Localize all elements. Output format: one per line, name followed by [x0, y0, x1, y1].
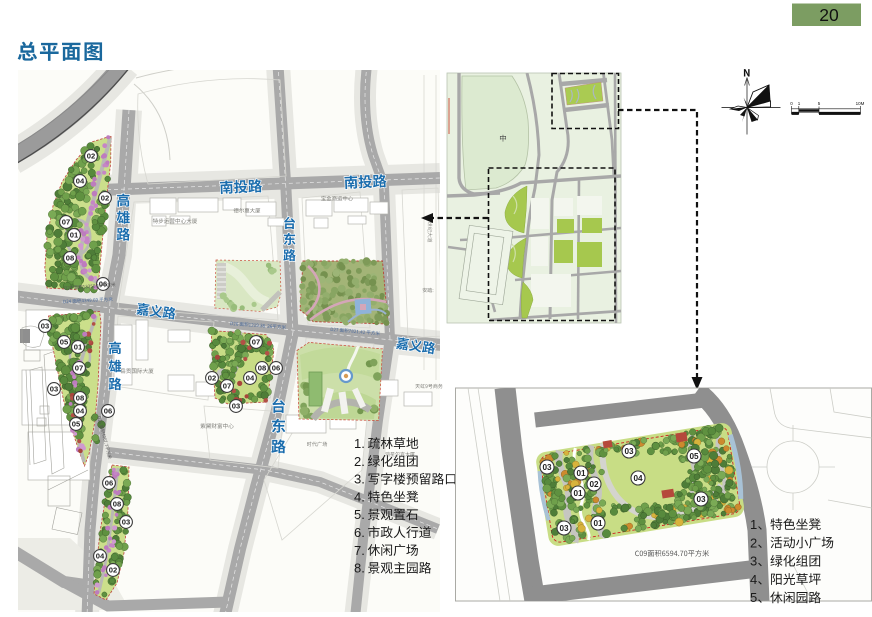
- svg-text:02: 02: [589, 480, 599, 489]
- svg-text:06: 06: [105, 479, 113, 488]
- svg-text:4.: 4.: [354, 489, 365, 504]
- svg-text:1.: 1.: [354, 436, 365, 451]
- svg-text:8.: 8.: [354, 561, 365, 576]
- svg-text:7.: 7.: [354, 543, 365, 558]
- svg-text:5: 5: [818, 101, 821, 106]
- svg-text:05: 05: [689, 452, 699, 461]
- svg-text:04: 04: [76, 177, 85, 186]
- svg-text:03: 03: [41, 322, 49, 331]
- svg-text:01: 01: [576, 469, 586, 478]
- svg-text:02: 02: [109, 566, 117, 575]
- svg-text:04: 04: [96, 552, 105, 561]
- svg-text:03: 03: [122, 518, 130, 527]
- svg-text:07: 07: [62, 218, 70, 227]
- svg-text:08: 08: [76, 394, 84, 403]
- svg-text:5.: 5.: [354, 507, 365, 522]
- svg-text:04: 04: [633, 474, 643, 483]
- svg-text:06: 06: [272, 364, 280, 373]
- svg-text:1: 1: [798, 101, 801, 106]
- svg-text:02: 02: [208, 374, 216, 383]
- svg-text:04: 04: [76, 407, 85, 416]
- svg-text:10M: 10M: [856, 101, 865, 106]
- svg-text:02: 02: [87, 152, 95, 161]
- svg-text:2: 2: [750, 535, 757, 550]
- svg-text:2.: 2.: [354, 454, 365, 469]
- svg-text:03: 03: [624, 447, 634, 456]
- svg-text:6.: 6.: [354, 525, 365, 540]
- svg-text:03: 03: [696, 495, 706, 504]
- svg-text:08: 08: [258, 364, 266, 373]
- svg-text:07: 07: [75, 364, 83, 373]
- svg-text:07: 07: [252, 338, 260, 347]
- svg-text:06: 06: [104, 407, 112, 416]
- svg-text:07: 07: [223, 382, 231, 391]
- svg-text:03: 03: [50, 385, 58, 394]
- svg-text:05: 05: [60, 338, 69, 347]
- svg-text:01: 01: [74, 343, 83, 352]
- svg-text:08: 08: [66, 254, 74, 263]
- svg-text:5: 5: [750, 590, 757, 605]
- svg-text:1: 1: [750, 517, 757, 532]
- svg-text:02: 02: [101, 194, 109, 203]
- svg-text:03: 03: [559, 524, 569, 533]
- svg-text:4: 4: [750, 572, 757, 587]
- svg-text:0: 0: [790, 101, 793, 106]
- svg-text:01: 01: [573, 489, 583, 498]
- svg-text:08: 08: [113, 500, 121, 509]
- svg-text:01: 01: [70, 231, 79, 240]
- svg-text:3.: 3.: [354, 472, 365, 487]
- svg-text:04: 04: [246, 374, 255, 383]
- svg-text:3: 3: [750, 554, 757, 569]
- svg-text:03: 03: [232, 402, 240, 411]
- svg-text:01: 01: [593, 519, 603, 528]
- svg-text:20: 20: [819, 5, 839, 25]
- svg-text:05: 05: [72, 420, 81, 429]
- svg-text:03: 03: [542, 463, 552, 472]
